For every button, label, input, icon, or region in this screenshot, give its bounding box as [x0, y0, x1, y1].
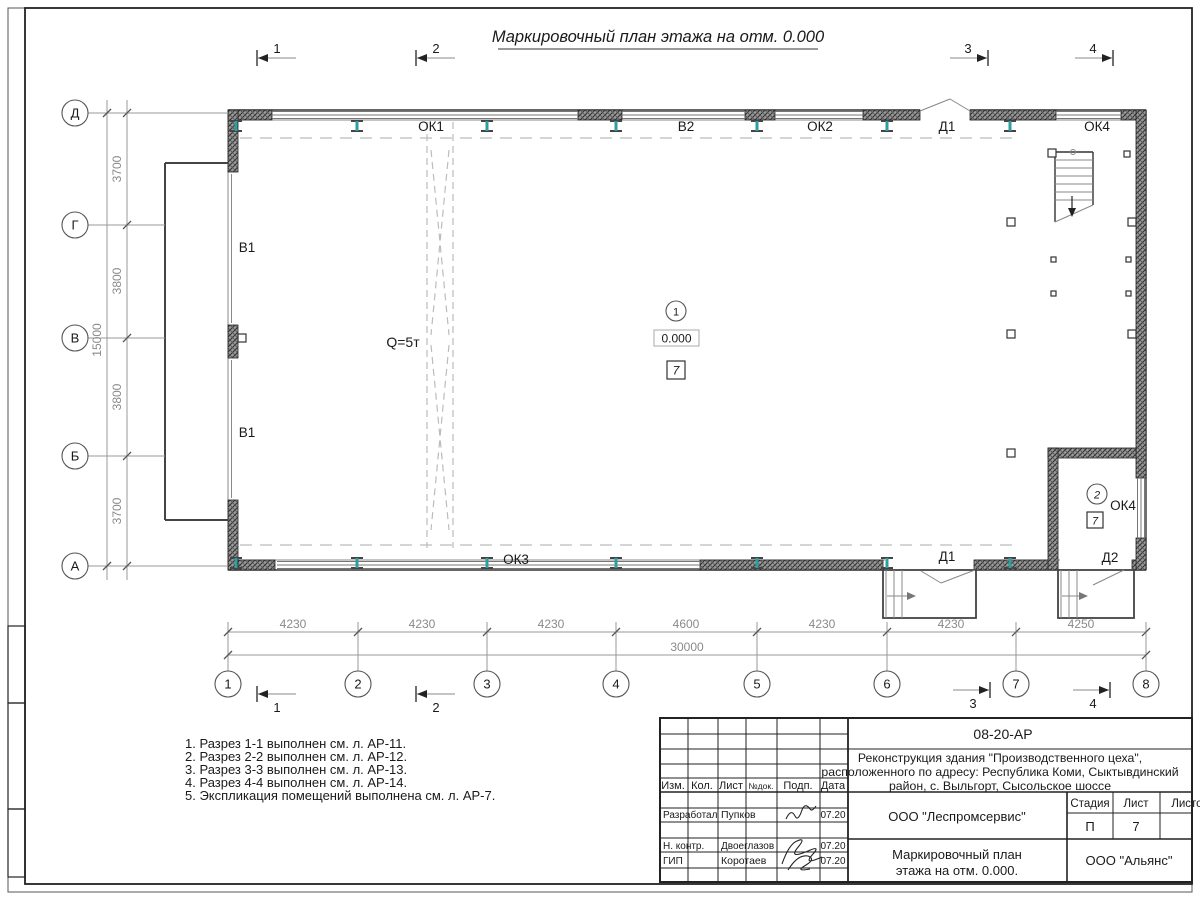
axis-row-bubble: Г: [71, 218, 78, 233]
axis-column-bubble: 6: [883, 677, 890, 692]
dim-bottom-segment: 4230: [938, 617, 965, 631]
window-label-ok3: ОК3: [503, 552, 529, 567]
date-gip: 07.20: [820, 856, 845, 867]
title-block: 08-20-АР Реконструкция здания "Производс…: [660, 718, 1200, 882]
dim-bottom-segment: 4230: [280, 617, 307, 631]
dim-bottom-segment: 4230: [409, 617, 436, 631]
gate-label-v1-upper: В1: [239, 240, 256, 255]
axis-column-bubble: 8: [1142, 677, 1149, 692]
sheet-value: 7: [1132, 819, 1139, 834]
window-label-ok1: ОК1: [418, 119, 444, 134]
drawing-name-line2: этажа на отм. 0.000.: [896, 863, 1018, 878]
dim-bottom-segment: 4600: [673, 617, 700, 631]
section-number: 4: [1089, 41, 1096, 56]
i-beam-icon: [1004, 121, 1016, 131]
project-name-line1: Реконструкция здания "Производственного …: [858, 751, 1142, 765]
section-number: 3: [969, 696, 976, 711]
project-name-line2: расположенного по адресу: Республика Ком…: [821, 765, 1178, 779]
dim-left-segment: 3700: [110, 497, 124, 524]
i-beam-icon: [610, 121, 622, 131]
drawing-name-line1: Маркировочный план: [892, 847, 1022, 862]
dim-left-segment: 3800: [110, 383, 124, 410]
notes-block: 1. Разрез 1-1 выполнен см. л. АР-11. 2. …: [185, 736, 495, 803]
dim-left-segment: 3800: [110, 267, 124, 294]
date-ncontrol: 07.20: [820, 841, 845, 852]
section-mark-2-bottom: 2: [416, 686, 455, 715]
section-mark-4-bottom: 4: [1073, 682, 1110, 711]
dim-left-total: 15000: [90, 323, 104, 357]
section-number: 4: [1089, 696, 1096, 711]
staircase: [1048, 149, 1130, 222]
drawing-sheet: Маркировочный план этажа на отм. 0.000: [0, 0, 1200, 900]
column-marker: [1124, 151, 1130, 157]
name-gip: Коротаев: [721, 855, 767, 867]
entrance-porch-2: [1058, 570, 1134, 618]
window-label-ok2: ОК2: [807, 119, 833, 134]
header-ndok: №док.: [749, 781, 774, 791]
axis-column-bubble: 3: [483, 677, 490, 692]
name-ncontrol: Двоеглазов: [721, 841, 774, 852]
section-number: 3: [964, 41, 971, 56]
axis-column-bubble: 5: [753, 677, 760, 692]
entrance-porch-1: [883, 570, 976, 618]
door-label-d1-top: Д1: [939, 119, 956, 134]
axis-column-bubble: 7: [1012, 677, 1019, 692]
section-mark-1-top: 1: [257, 41, 296, 66]
dimension-left: 15000 3700 3800 3800 3700: [90, 100, 131, 580]
i-beam-icon: [751, 121, 763, 131]
frame-stamp-box: [8, 809, 25, 877]
sheet-title-text: Маркировочный план этажа на отм. 0.000: [492, 28, 825, 46]
header-data: Дата: [821, 780, 846, 792]
section-mark-2-top: 2: [416, 41, 455, 66]
column-marker: [238, 334, 246, 342]
axis-column-bubble: 1: [224, 677, 231, 692]
section-mark-1-bottom: 1: [257, 686, 296, 715]
section-number: 2: [432, 700, 439, 715]
axis-row-bubble: А: [71, 559, 80, 574]
dim-bottom-segment: 4230: [809, 617, 836, 631]
axis-column-bubble: 2: [354, 677, 361, 692]
i-beam-icon: [351, 121, 363, 131]
window-label-ok4-room2: ОК4: [1110, 498, 1136, 513]
axis-row-bubble: Б: [71, 449, 80, 464]
stage-label: Стадия: [1070, 798, 1109, 810]
room1-elevation: 0.000: [661, 332, 691, 346]
note-line: 5. Экспликация помещений выполнена см. л…: [185, 788, 495, 803]
axis-row-markers: Д Г В Б А: [62, 100, 228, 579]
room1-number: 1: [673, 307, 679, 319]
room2-floor-type: 7: [1092, 516, 1099, 528]
door-label-d2: Д2: [1102, 550, 1119, 565]
section-mark-3-top: 3: [950, 41, 988, 66]
floor-plan-drawing: Маркировочный план этажа на отм. 0.000: [0, 0, 1200, 900]
section-number: 1: [273, 41, 280, 56]
room1-tag: 1 0.000 7: [654, 301, 699, 379]
header-list: Лист: [719, 780, 743, 792]
room2-tag: 2 7: [1087, 484, 1107, 528]
doc-number: 08-20-АР: [973, 726, 1032, 742]
crane-runway: [240, 122, 1013, 548]
header-podp: Подп.: [783, 780, 812, 792]
name-developer: Пупков: [721, 809, 756, 821]
frame-stamp-box: [8, 703, 25, 809]
section-number: 1: [273, 700, 280, 715]
design-organization: ООО "Леспромсервис": [888, 809, 1026, 824]
contractor-name: ООО "Альянс": [1086, 853, 1173, 868]
stage-value: П: [1085, 819, 1094, 834]
axis-column-bubble: 4: [612, 677, 619, 692]
column-marker: [1048, 149, 1056, 157]
sheet-title: Маркировочный план этажа на отм. 0.000: [492, 28, 825, 49]
axis-row-bubble: В: [71, 331, 80, 346]
room2-number: 2: [1093, 490, 1100, 502]
steel-beam-columns: [230, 121, 1016, 568]
frame-stamp-box: [8, 626, 25, 703]
role-gip: ГИП: [663, 856, 683, 867]
gate-label-v1-lower: В1: [239, 425, 256, 440]
i-beam-icon: [481, 121, 493, 131]
gate-label-v2: В2: [678, 119, 695, 134]
header-izm: Изм.: [661, 780, 685, 792]
window-label-ok4-top: ОК4: [1084, 119, 1110, 134]
dimension-bottom: 4230 4230 4230 4600 4230 4230 4250 30000…: [215, 617, 1159, 697]
section-mark-4-top: 4: [1075, 41, 1113, 66]
role-developer: Разработал: [663, 809, 718, 821]
crane-capacity-label: Q=5т: [386, 334, 420, 350]
sheet-label: Лист: [1124, 798, 1150, 810]
project-name-line3: район, с. Выльгорт, Сысольское шоссе: [889, 779, 1111, 793]
role-ncontrol: Н. контр.: [663, 841, 704, 852]
section-mark-3-bottom: 3: [953, 682, 990, 711]
dim-bottom-segment: 4230: [538, 617, 565, 631]
axis-row-bubble: Д: [71, 106, 80, 121]
interior-columns: [1007, 218, 1136, 457]
section-number: 2: [432, 41, 439, 56]
dim-bottom-segment: 4250: [1068, 617, 1095, 631]
dim-left-segment: 3700: [110, 155, 124, 182]
sheets-label: Листов: [1171, 798, 1200, 810]
header-kol: Кол.: [691, 780, 713, 792]
dim-bottom-total: 30000: [670, 640, 704, 654]
i-beam-icon: [881, 121, 893, 131]
annex-outline: [165, 163, 228, 520]
date-developer: 07.20: [820, 810, 845, 821]
door-label-d1-bottom: Д1: [939, 549, 956, 564]
